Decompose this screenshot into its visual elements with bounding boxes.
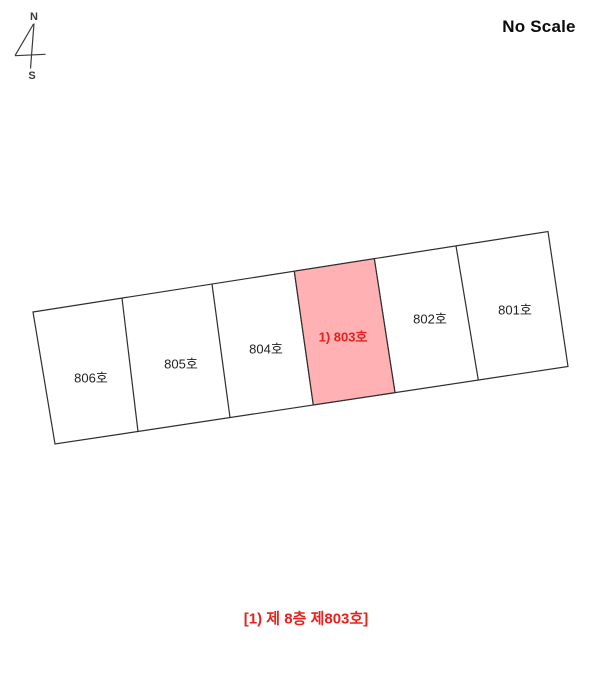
unit-label-804: 804호 [249, 339, 283, 358]
caption: [1) 제 8층 제803호] [244, 608, 368, 629]
unit-label-803: 1) 803호 [319, 327, 368, 346]
unit-label-806: 806호 [74, 368, 108, 387]
unit-label-805: 805호 [164, 354, 198, 373]
divider-805-804 [212, 284, 230, 418]
page: N S No Scale 806호 805호 804호 1) 803호 802호… [0, 0, 604, 700]
building-outline [33, 232, 568, 445]
floor-plan-drawing [0, 0, 604, 700]
unit-label-802: 802호 [413, 309, 447, 328]
unit-label-801: 801호 [498, 300, 532, 319]
divider-802-801 [456, 246, 478, 380]
divider-806-805 [122, 298, 138, 431]
